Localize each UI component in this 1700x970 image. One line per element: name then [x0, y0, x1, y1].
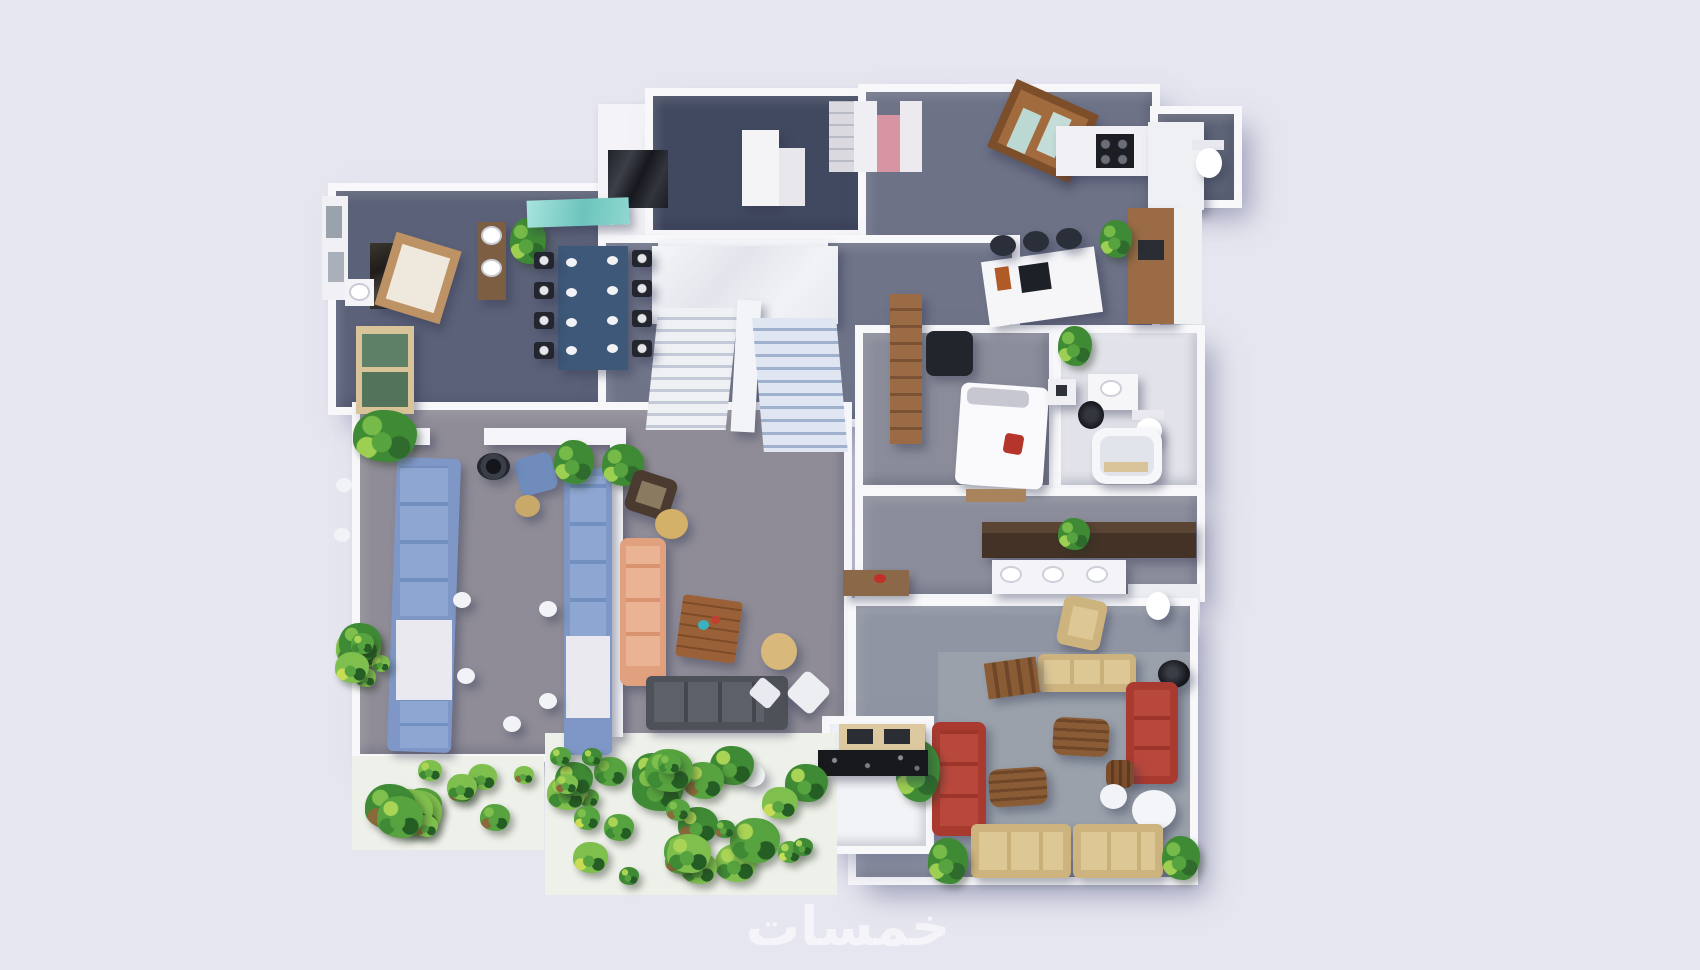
garden-center-plant: [658, 753, 682, 774]
tan-sofa-south-1-cushions: [979, 832, 1063, 870]
plant-wardrobe: [1058, 518, 1090, 550]
garden-center-plant: [550, 747, 571, 766]
page-background: { "watermark": { "text": "خمسات" }, "sce…: [0, 0, 1700, 970]
bed-bench: [966, 489, 1026, 502]
cabinet-white-2: [900, 101, 922, 172]
tan-sofa-south-2-cushions: [1081, 832, 1155, 870]
plant-kitchen: [1100, 220, 1132, 258]
coffee-item-red: [711, 616, 720, 624]
bath-basin: [1100, 380, 1122, 397]
nightstand-item: [1056, 385, 1067, 396]
dining-plate-1: [566, 258, 577, 267]
cabinet-glass-1: [362, 334, 408, 367]
balcony-table-2: [334, 528, 350, 542]
garden-bottom-left-plant: [514, 766, 534, 784]
dining-plate-3: [566, 288, 577, 297]
dining-plate-7: [566, 346, 577, 355]
majlis-stool-1: [453, 592, 471, 608]
bathtub-tray: [1104, 462, 1148, 472]
bar-stool-2: [1023, 231, 1049, 252]
blue-sofa-west-cushions: [400, 466, 448, 616]
round-table-dark: [477, 453, 510, 480]
grey-sofa-cushions: [654, 682, 764, 722]
wall-basin-2: [481, 259, 502, 277]
garden-center-plant: [555, 774, 577, 794]
dining-chair-2: [534, 282, 554, 299]
dining-chair-3: [534, 312, 554, 329]
ottoman-gold: [655, 509, 688, 539]
dining-plate-2: [607, 256, 618, 265]
washbasin: [349, 283, 370, 301]
counter-right-wood: [1128, 208, 1174, 324]
garden-left-edge-plant: [372, 655, 390, 671]
garden-center-plant: [762, 787, 798, 819]
vanity-basin-1: [1000, 566, 1022, 583]
majlis-stool-3: [457, 668, 475, 684]
tan-sofa-north-cushions: [1044, 660, 1130, 684]
garden-center-plant: [714, 820, 734, 838]
wc-toilet: [1196, 148, 1222, 178]
ottoman-tan-round: [761, 633, 797, 670]
dining-chair-1: [534, 252, 554, 269]
bar-stool-3: [1056, 228, 1082, 249]
majlis-stool-5: [503, 716, 521, 732]
ac-unit-2: [328, 252, 344, 282]
firewood-stack: [984, 657, 1041, 700]
garden-bottom-left-plant: [418, 760, 441, 781]
dining-chair-8: [632, 340, 652, 357]
plant-living-2: [928, 838, 968, 884]
stair-flight-right: [752, 318, 848, 452]
island-cooktop: [1018, 262, 1051, 293]
stove-black: [1096, 134, 1134, 168]
tv-screen: [926, 331, 973, 376]
blue-sofa-west-cushions-2: [400, 700, 448, 748]
blue-sofa-west-white-seat: [396, 620, 452, 700]
counter-right-top: [1174, 208, 1202, 324]
round-table-gold: [515, 495, 540, 517]
hall-toilet: [1146, 592, 1170, 620]
pantry-shelf: [829, 101, 854, 172]
island-cutting-board: [994, 266, 1011, 291]
dining-chair-6: [632, 280, 652, 297]
plant-bedroom: [1058, 326, 1092, 366]
cabinet-pink: [877, 115, 900, 172]
floor-plan-scene: [0, 0, 1700, 970]
bed-pillow-red: [1002, 433, 1024, 456]
coffee-table-wood: [675, 594, 743, 664]
majlis-stool-2: [539, 601, 557, 617]
dining-plate-5: [566, 318, 577, 327]
plant-majlis-2: [554, 440, 594, 484]
dining-chair-4: [534, 342, 554, 359]
red-sofa-east-cushions: [1134, 690, 1170, 776]
plant-living-3: [1162, 836, 1200, 880]
bbq-counter-marble: [818, 750, 928, 776]
log-table-2: [988, 766, 1049, 808]
log-table-1: [1052, 717, 1110, 758]
wall-basin-1: [481, 226, 502, 245]
wall-majlis-top-2: [484, 428, 626, 445]
stair-flight-left: [646, 308, 739, 430]
peach-sofa-cushions: [626, 546, 660, 666]
side-table-white-1: [1100, 784, 1127, 809]
dining-chair-7: [632, 310, 652, 327]
cabinet-glass-2: [362, 372, 408, 407]
glass-skylight-teal: [527, 197, 630, 228]
bbq-inset-1: [847, 729, 873, 744]
blue-sofa-east-cushions: [570, 476, 606, 636]
balcony-table-1: [336, 478, 352, 492]
dining-plate-8: [607, 344, 618, 353]
garden-bottom-left-plant: [377, 796, 424, 838]
dining-plate-4: [607, 286, 618, 295]
garden-center-plant: [730, 818, 780, 863]
vanity-basin-2: [1042, 566, 1064, 583]
garden-center-plant: [574, 806, 601, 830]
garden-center-plant: [666, 799, 690, 821]
garden-center-plant: [573, 842, 608, 874]
vanity-basin-3: [1086, 566, 1108, 583]
blue-sofa-east-white-seat: [566, 636, 610, 718]
counter-sink-dark: [1138, 240, 1164, 260]
plant-majlis-1: [353, 410, 417, 462]
dining-plate-6: [607, 316, 618, 325]
watermark-khamsat: خمسات: [718, 898, 978, 956]
garden-left-edge-plant: [335, 652, 369, 683]
garden-center-plant: [793, 838, 813, 856]
console-flowers: [874, 574, 886, 583]
garden-center-plant: [667, 834, 710, 873]
cabinet-white-1: [854, 101, 877, 172]
majlis-stool-4: [539, 693, 557, 709]
dining-chair-5: [632, 250, 652, 267]
ac-unit-1: [326, 206, 342, 238]
bbq-inset-2: [884, 729, 910, 744]
tv-shelf-wood: [890, 294, 922, 444]
garden-bottom-left-plant: [447, 774, 476, 800]
fridge-2: [779, 148, 805, 206]
coffee-cup-teal: [698, 620, 709, 630]
bath-rug-dark: [1078, 401, 1104, 429]
bar-stool-1: [990, 235, 1016, 256]
red-sofa-west-cushions: [940, 730, 978, 826]
fridge: [742, 130, 779, 206]
garden-left-edge-plant: [351, 633, 374, 653]
